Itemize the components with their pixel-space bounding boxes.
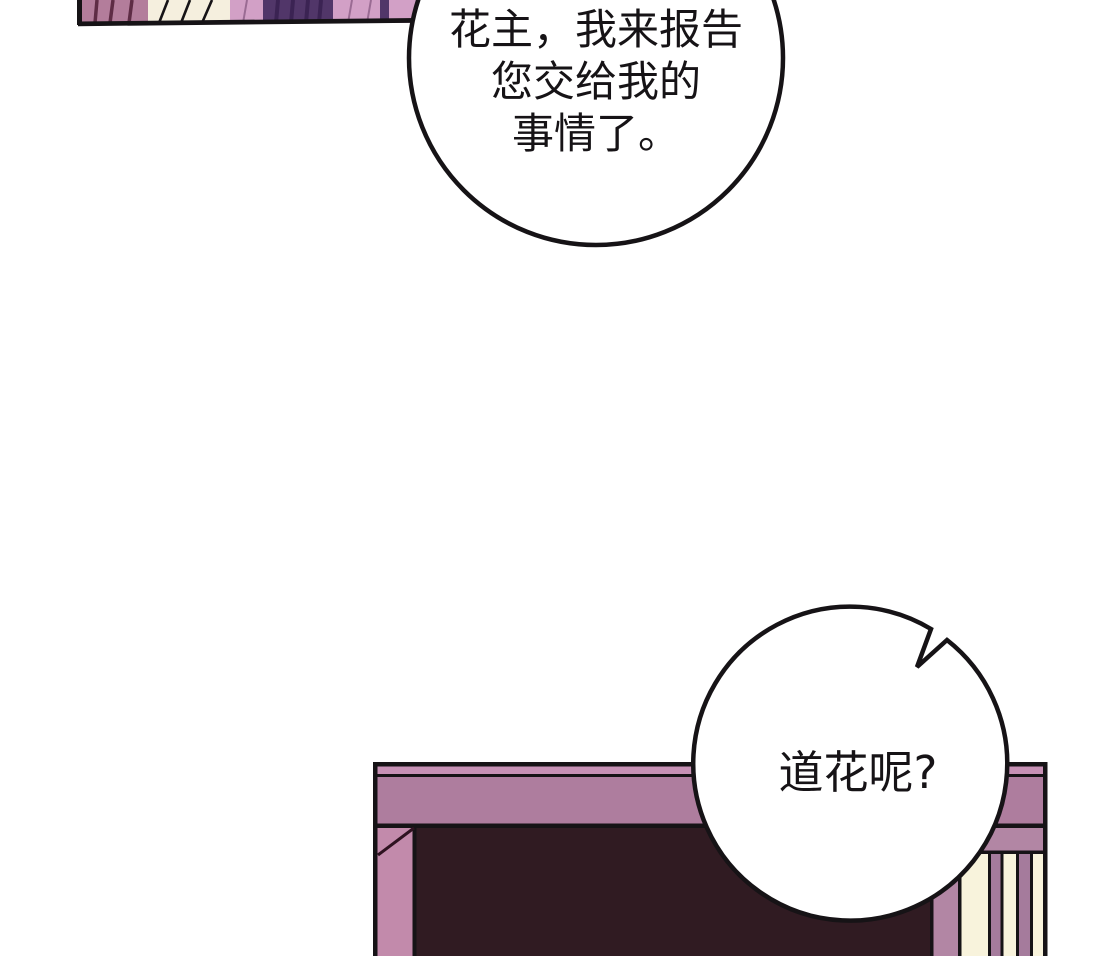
screen-stripe-2-left-line	[1016, 854, 1019, 956]
screen-stripe-1-left-line	[988, 854, 991, 956]
bubble-top-line-2: 您交给我的	[416, 56, 776, 108]
comic-panel: 花主，我来报告 您交给我的 事情了。 道花呢?	[0, 0, 1100, 956]
strip-left-border	[77, 0, 83, 25]
doorframe-outer-right-edge	[1043, 762, 1048, 956]
screen-stripe-1	[991, 854, 1001, 956]
fabric-rose	[82, 0, 148, 23]
screen-stripe-2-right-line	[1030, 854, 1033, 956]
bubble-top-line-1: 花主，我来报告	[416, 4, 776, 56]
door-left-post	[378, 828, 413, 956]
screen-stripe-1-right-line	[1001, 854, 1004, 956]
previous-panel-strip	[77, 0, 418, 26]
speech-bubble-right-text: 道花呢?	[708, 746, 1008, 800]
speech-bubble-top-text: 花主，我来报告 您交给我的 事情了。	[416, 4, 776, 160]
screen-stripe-2	[1019, 854, 1030, 956]
doorframe-outer-left-edge	[373, 762, 378, 956]
bubble-top-line-3: 事情了。	[416, 108, 776, 160]
post-inner-edge	[413, 828, 417, 956]
